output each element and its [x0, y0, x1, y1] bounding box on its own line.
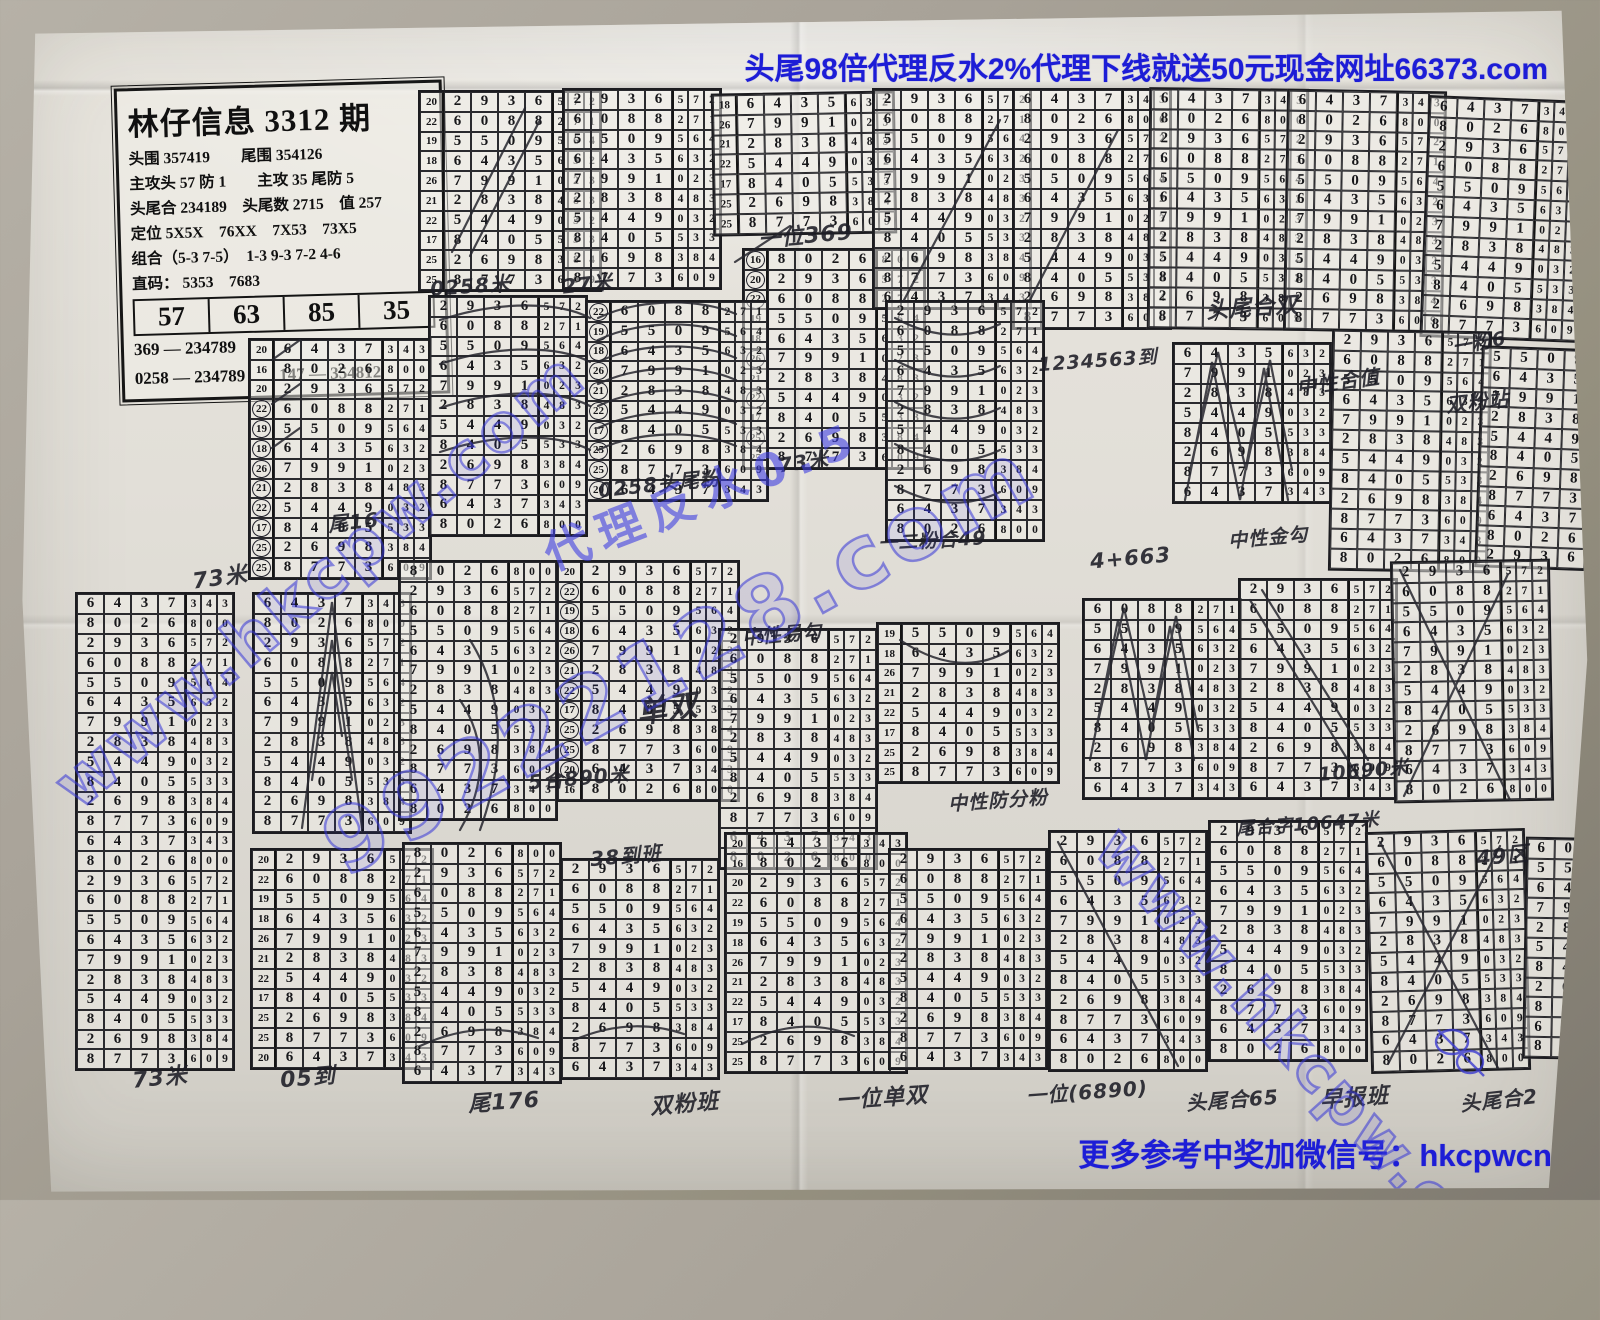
digit-cell: 5	[1424, 255, 1452, 276]
digit-cell: 5	[1332, 449, 1359, 469]
digit-cell: 9	[131, 792, 158, 812]
digit-cell: 0	[540, 800, 556, 820]
digit-cell: 8	[1291, 842, 1318, 862]
row-label-cell: 19	[420, 132, 444, 152]
digit-cell: 9	[1042, 763, 1058, 783]
digit-cell: 9	[1581, 899, 1600, 919]
digit-cell: 8	[328, 399, 355, 419]
grid-row: 8026800	[404, 844, 560, 864]
digit-cell: 8	[692, 381, 719, 401]
digit-cell: 8	[1548, 240, 1565, 260]
digit-cell: 7	[1511, 100, 1539, 121]
digit-cell: 2	[77, 871, 104, 891]
digit-cell: 3	[481, 760, 508, 780]
digit-cell: 8	[1077, 931, 1104, 951]
digit-cell: 2	[1525, 977, 1552, 997]
digit-cell: 4	[914, 500, 941, 520]
digit-cell: 8	[968, 401, 995, 421]
digit-cell: 9	[158, 673, 185, 693]
digit-cell: 8	[1582, 840, 1600, 860]
digit-cell: 5	[185, 772, 201, 792]
digit-cell: 3	[1423, 931, 1451, 951]
digit-cell: 1	[1027, 322, 1043, 342]
digit-cell: 3	[1422, 891, 1450, 911]
digit-cell: 8	[158, 1030, 185, 1050]
digit-cell: 8	[1151, 109, 1178, 129]
digit-cell: 6	[1288, 150, 1315, 170]
handwritten-annotation: 49区	[1475, 837, 1531, 872]
digit-cell: 3	[941, 302, 968, 322]
digit-cell: 0	[609, 582, 636, 602]
digit-cell: 7	[1240, 659, 1267, 679]
digit-cell: 3	[1318, 980, 1334, 1000]
digit-cell: 9	[764, 114, 791, 134]
grid-row: 5509564	[1050, 872, 1206, 892]
digit-cell: 6	[1014, 189, 1041, 209]
row-label-cell: 17	[714, 174, 738, 194]
row-label-cell: 25	[587, 441, 611, 461]
digit-cell: 4	[458, 983, 485, 1003]
digit-cell: 9	[431, 943, 458, 963]
digit-cell: 5	[1318, 961, 1334, 981]
number-grid: 1955095641864356322679910232128384832254…	[876, 622, 1060, 784]
digit-cell: 7	[1505, 487, 1533, 508]
digit-cell: 6	[335, 614, 362, 634]
digit-cell: 2	[611, 381, 638, 401]
digit-cell: 3	[1204, 189, 1231, 209]
digit-cell: 6	[1258, 189, 1274, 209]
grid-row: 8773609	[1174, 463, 1330, 483]
digit-cell: 8	[104, 733, 131, 753]
digit-cell: 0	[1294, 620, 1321, 640]
digit-cell: 7	[901, 268, 928, 288]
digit-cell: 2	[217, 931, 233, 951]
digit-cell: 4	[1502, 660, 1518, 680]
grid-row: 6088271	[254, 653, 410, 673]
grid-row: 5509564	[887, 342, 1043, 362]
digit-cell: 5	[77, 752, 104, 772]
digit-cell: 3	[1388, 332, 1415, 352]
digit-cell: 6	[281, 792, 308, 812]
number-grid: 2936572608827155095646435632799102328384…	[872, 88, 1032, 310]
digit-cell: 2	[444, 191, 471, 211]
digit-cell: 9	[618, 169, 645, 189]
digit-cell: 3	[540, 661, 556, 681]
digit-cell: 8	[77, 851, 104, 871]
digit-cell: 2	[1104, 1050, 1131, 1070]
digit-cell: 9	[1294, 659, 1321, 679]
digit-cell: 0	[1174, 1050, 1190, 1070]
digit-cell: 3	[1282, 443, 1298, 463]
grid-row: 2838483	[1150, 228, 1306, 249]
digit-cell: 8	[1331, 469, 1358, 489]
digit-cell: 7	[1453, 1029, 1481, 1049]
digit-cell: 4	[638, 401, 665, 421]
digit-cell: 8	[858, 854, 874, 874]
digit-cell: 9	[795, 349, 822, 369]
digit-cell: 5	[525, 231, 552, 251]
digit-cell: 2	[1210, 822, 1237, 842]
digit-cell: 6	[1449, 296, 1477, 317]
grid-row: 8026800	[400, 800, 556, 820]
grid-row: 195509564	[587, 322, 767, 342]
digit-cell: 6	[1210, 842, 1237, 862]
digit-cell: 6	[77, 693, 104, 713]
digit-cell: 9	[484, 455, 511, 475]
digit-cell: 8	[955, 110, 982, 130]
digit-cell: 4	[995, 401, 1011, 421]
digit-cell: 8	[1208, 739, 1224, 759]
digit-cell: 0	[1385, 470, 1412, 490]
grid-row: 8405533	[1286, 269, 1442, 292]
digit-cell: 8	[254, 812, 281, 832]
grid-row: 8773609	[1050, 1010, 1206, 1030]
digit-cell: 3	[131, 733, 158, 753]
digit-cell: 8	[1014, 1008, 1030, 1028]
digit-cell: 4	[104, 693, 131, 713]
digit-cell: 5	[672, 130, 688, 150]
digit-cell: 7	[1174, 832, 1190, 852]
digit-cell: 9	[956, 743, 983, 763]
grid-row: 226088271	[250, 399, 430, 419]
digit-cell: 7	[1264, 1000, 1291, 1020]
digit-cell: 7	[1208, 600, 1224, 620]
digit-cell: 3	[1384, 530, 1411, 550]
grid-row: 2698384	[430, 455, 586, 475]
digit-cell: 6	[1050, 891, 1077, 911]
digit-cell: 8	[1288, 110, 1315, 130]
digit-cell: 7	[618, 268, 645, 288]
handwritten-annotation: 0258米	[429, 267, 511, 302]
digit-cell: 4	[777, 1012, 804, 1032]
digit-cell: 5	[562, 979, 589, 999]
digit-cell: 8	[404, 844, 431, 864]
grid-row: 8405533	[1394, 699, 1550, 722]
digit-cell: 2	[1050, 990, 1077, 1010]
digit-cell: 7	[941, 480, 968, 500]
digit-cell: 0	[917, 870, 944, 890]
digit-cell: 5	[384, 890, 400, 910]
grid-row: 7991023	[400, 661, 556, 681]
digit-cell: 6	[335, 634, 362, 654]
digit-cell: 8	[663, 582, 690, 602]
digit-cell: 2	[254, 792, 281, 812]
digit-cell: 8	[1481, 1049, 1498, 1069]
digit-cell: 8	[254, 614, 281, 634]
grid-row: 186435632	[558, 621, 738, 641]
digit-cell: 7	[454, 760, 481, 780]
digit-cell: 6	[998, 909, 1014, 929]
digit-cell: 5	[185, 673, 201, 693]
digit-cell: 3	[1122, 90, 1138, 110]
digit-cell: 3	[995, 500, 1011, 520]
digit-cell: 2	[562, 860, 589, 880]
digit-cell: 4	[431, 983, 458, 1003]
digit-cell: 0	[104, 653, 131, 673]
digit-cell: 0	[1122, 209, 1138, 229]
grid-row: 6435632	[1084, 640, 1240, 660]
digit-cell: 3	[860, 709, 876, 729]
digit-cell: 3	[1042, 664, 1058, 684]
digit-cell: 5	[444, 132, 471, 152]
digit-cell: 7	[1399, 1011, 1427, 1031]
digit-cell: 3	[1068, 130, 1095, 150]
digit-cell: 6	[1010, 763, 1026, 783]
digit-cell: 3	[941, 500, 968, 520]
digit-cell: 6	[720, 650, 747, 670]
digit-cell: 3	[1104, 891, 1131, 911]
grid-row: 206437343	[250, 340, 430, 360]
digit-cell: 2	[1240, 580, 1267, 600]
digit-cell: 2	[564, 90, 591, 110]
row-label-cell: 26	[252, 929, 276, 949]
digit-cell: 8	[77, 772, 104, 792]
digit-cell: 6	[404, 1062, 431, 1082]
digit-cell: 0	[690, 641, 706, 661]
digit-cell: 6	[1240, 639, 1267, 659]
handwritten-annotation: 一位(6890)	[1025, 1072, 1149, 1109]
digit-cell: 7	[1095, 90, 1122, 110]
grid-row: 8026800	[1373, 1048, 1529, 1072]
digit-cell: 2	[540, 582, 556, 602]
digit-cell: 0	[1348, 699, 1364, 719]
digit-cell: 5	[538, 337, 554, 357]
digit-cell: 8	[1084, 719, 1111, 739]
digit-cell: 4	[1201, 344, 1228, 364]
digit-cell: 5	[690, 602, 706, 622]
digit-cell: 0	[201, 1049, 217, 1069]
digit-cell: 8	[362, 614, 378, 634]
digit-cell: 4	[201, 594, 217, 614]
digit-cell: 4	[616, 979, 643, 999]
digit-cell: 7	[887, 381, 914, 401]
digit-cell: 8	[1131, 931, 1158, 951]
digit-cell: 2	[524, 661, 540, 681]
digit-cell: 0	[185, 713, 201, 733]
digit-cell: 3	[454, 641, 481, 661]
digit-cell: 6	[1364, 620, 1380, 640]
digit-cell: 8	[1050, 1010, 1077, 1030]
digit-cell: 8	[1493, 929, 1510, 949]
digit-cell: 4	[185, 733, 201, 753]
digit-cell: 0	[1553, 122, 1570, 142]
digit-cell: 5	[929, 624, 956, 644]
digit-cell: 0	[1502, 680, 1518, 700]
digit-cell: 4	[281, 752, 308, 772]
digit-cell: 3	[384, 1048, 400, 1068]
digit-cell: 6	[1240, 600, 1267, 620]
digit-cell: 5	[643, 919, 670, 939]
digit-cell: 2	[254, 733, 281, 753]
digit-cell: 5	[858, 874, 874, 894]
digit-cell: 5	[1394, 682, 1421, 702]
digit-cell: 2	[528, 943, 544, 963]
digit-cell: 8	[1475, 660, 1502, 680]
digit-cell: 8	[1366, 290, 1393, 310]
grid-row: 5509564	[1150, 168, 1306, 189]
row-label-cell: 18	[558, 621, 582, 641]
digit-cell: 0	[686, 1038, 702, 1058]
digit-cell: 5	[849, 329, 876, 349]
digit-cell: 0	[1456, 118, 1484, 139]
row-label-cell: 25	[252, 1008, 276, 1028]
digit-cell: 8	[400, 800, 427, 820]
grid-row: 202936572	[726, 874, 906, 894]
digit-cell: 8	[1364, 679, 1380, 699]
digit-cell: 3	[1190, 911, 1206, 931]
digit-cell: 3	[616, 919, 643, 939]
grid-row: 2936572	[1151, 129, 1307, 150]
digit-cell: 5	[1536, 141, 1553, 161]
digit-cell: 1	[1450, 910, 1478, 930]
digit-cell: 9	[589, 939, 616, 959]
digit-cell: 5	[430, 416, 457, 436]
digit-cell: 2	[378, 713, 394, 733]
digit-cell: 0	[1341, 171, 1368, 191]
digit-cell: 3	[454, 681, 481, 701]
digit-cell: 7	[1334, 842, 1350, 862]
digit-cell: 3	[1476, 740, 1503, 760]
digit-cell: 3	[1042, 683, 1058, 703]
digit-cell: 2	[362, 653, 378, 673]
digit-cell: 2	[444, 250, 471, 270]
digit-cell: 7	[77, 713, 104, 733]
digit-cell: 8	[611, 421, 638, 441]
grid-row: 8773609	[562, 1038, 718, 1058]
handwritten-annotation: 27米	[561, 265, 615, 299]
grid-row: 2698384	[720, 788, 876, 808]
digit-cell: 8	[1014, 949, 1030, 969]
digit-cell: 0	[1334, 1000, 1350, 1020]
digit-cell: 9	[281, 634, 308, 654]
grid-row: 2698384	[404, 1022, 560, 1042]
grid-row: 5509564	[890, 890, 1046, 910]
digit-cell: 5	[670, 999, 686, 1019]
digit-cell: 6	[1478, 506, 1506, 527]
digit-cell: 9	[1264, 901, 1291, 921]
digit-cell: 8	[525, 191, 552, 211]
digit-cell: 3	[998, 1048, 1014, 1068]
digit-cell: 6	[185, 812, 201, 832]
grid-row: 5449032	[564, 209, 720, 229]
digit-cell: 3	[398, 439, 414, 459]
digit-cell: 3	[508, 780, 524, 800]
digit-cell: 1	[1231, 209, 1258, 229]
digit-cell: 4	[1350, 980, 1366, 1000]
digit-cell: 3	[686, 979, 702, 999]
digit-cell: 9	[498, 171, 525, 191]
digit-cell: 5	[902, 624, 929, 644]
digit-cell: 9	[1447, 641, 1474, 661]
digit-cell: 9	[944, 929, 971, 949]
digit-cell: 6	[77, 832, 104, 852]
digit-cell: 8	[404, 1002, 431, 1022]
digit-cell: 0	[1068, 268, 1095, 288]
digit-cell: 6	[1393, 310, 1409, 330]
digit-cell: 6	[77, 891, 104, 911]
digit-cell: 5	[1174, 403, 1201, 423]
digit-cell: 9	[1178, 129, 1205, 149]
digit-cell: 5	[995, 302, 1011, 322]
digit-cell: 9	[457, 297, 484, 317]
digit-cell: 4	[1359, 450, 1386, 470]
digit-cell: 0	[1014, 1028, 1030, 1048]
number-grid: 5509564643563279910232838483544903284055…	[1474, 345, 1600, 572]
digit-cell: 3	[528, 983, 544, 1003]
digit-cell: 0	[185, 950, 201, 970]
digit-cell: 0	[1501, 640, 1517, 660]
digit-cell: 5	[690, 562, 706, 582]
digit-cell: 5	[747, 670, 774, 690]
digit-cell: 3	[1492, 890, 1509, 910]
digit-cell: 3	[1456, 452, 1472, 472]
digit-cell: 0	[570, 515, 586, 535]
digit-cell: 3	[362, 594, 378, 614]
digit-cell: 8	[1174, 990, 1190, 1010]
digit-cell: 3	[702, 1058, 718, 1078]
digit-cell: 4	[1350, 862, 1366, 882]
grid-row: 8026800	[1524, 1037, 1600, 1060]
grid-row: 7991023	[890, 929, 1046, 949]
digit-cell: 3	[1010, 743, 1026, 763]
handwritten-annotation: 尾176	[467, 1082, 541, 1119]
digit-cell: 9	[131, 1030, 158, 1050]
grid-row: 2838483	[890, 949, 1046, 969]
digit-cell: 9	[570, 475, 586, 495]
digit-cell: 5	[1267, 620, 1294, 640]
digit-cell: 6	[457, 455, 484, 475]
number-grid: 2936572608827155095646435632799102328384…	[1390, 559, 1554, 803]
digit-cell: 3	[831, 1052, 858, 1072]
digit-cell: 9	[303, 929, 330, 949]
digit-cell: 6	[1077, 990, 1104, 1010]
digit-cell: 5	[887, 421, 914, 441]
digit-cell: 3	[1174, 891, 1190, 911]
digit-cell: 4	[1027, 460, 1043, 480]
digit-cell: 2	[1240, 679, 1267, 699]
digit-cell: 6	[971, 850, 998, 870]
digit-cell: 4	[1138, 699, 1165, 719]
digit-cell: 8	[890, 1028, 917, 1048]
digit-cell: 0	[131, 911, 158, 931]
digit-cell: 0	[1455, 511, 1471, 531]
digit-cell: 5	[777, 913, 804, 933]
digit-cell: 5	[274, 419, 301, 439]
digit-cell: 6	[511, 515, 538, 535]
digit-cell: 8	[201, 733, 217, 753]
digit-cell: 8	[1095, 149, 1122, 169]
digit-cell: 5	[846, 172, 862, 192]
grid-row: 8405533	[1240, 719, 1396, 739]
digit-cell: 7	[1228, 463, 1255, 483]
digit-cell: 8	[944, 870, 971, 890]
digit-cell: 3	[1174, 951, 1190, 971]
digit-cell: 4	[1158, 931, 1174, 951]
digit-cell: 6	[301, 538, 328, 558]
digit-cell: 3	[1334, 881, 1350, 901]
digit-cell: 0	[1423, 780, 1450, 800]
digit-cell: 9	[804, 1032, 831, 1052]
digit-cell: 3	[1318, 1020, 1334, 1040]
digit-cell: 8	[1298, 443, 1314, 463]
digit-cell: 6	[1330, 529, 1357, 549]
grid-row: 7991023	[564, 169, 720, 189]
digit-cell: 3	[1165, 758, 1192, 778]
digit-cell: 6	[874, 110, 901, 130]
grid-row: 5449032	[404, 983, 560, 1003]
digit-cell: 4	[860, 788, 876, 808]
digit-cell: 0	[554, 515, 570, 535]
